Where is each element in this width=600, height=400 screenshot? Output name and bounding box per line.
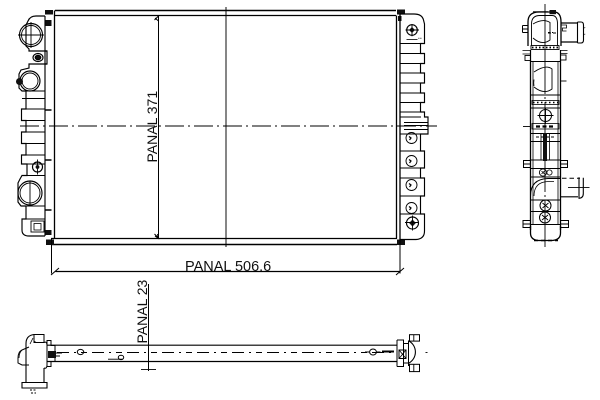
svg-text:PANAL 371: PANAL 371 [144,91,160,163]
svg-text:PANAL 23: PANAL 23 [134,279,150,343]
svg-text:PANAL 506.6: PANAL 506.6 [185,259,271,275]
